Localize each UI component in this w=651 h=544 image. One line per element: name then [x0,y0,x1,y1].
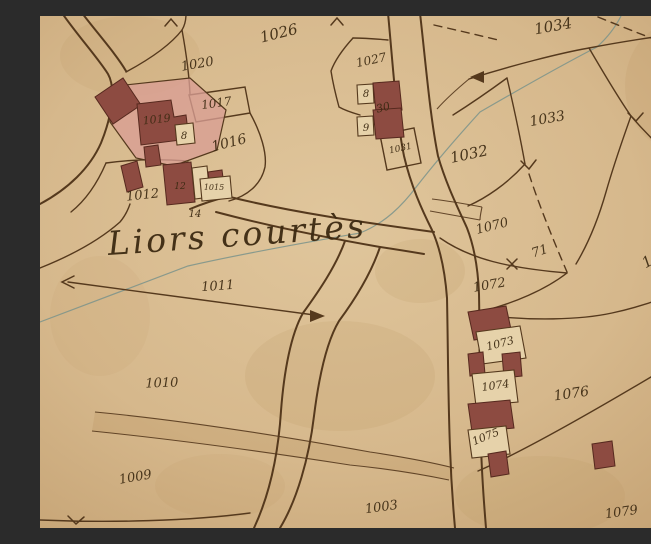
paper-stain [50,256,150,376]
cadastral-map: 1026102010171019810161012121015141027830… [40,16,651,528]
building-label-8: 8 [363,89,369,100]
building [592,441,615,469]
building [468,352,485,376]
paper-stain [155,454,285,518]
building-label-12: 12 [174,182,186,192]
building-label-9: 9 [363,123,370,134]
paper-stain [245,321,435,431]
map-canvas: 1026102010171019810161012121015141027830… [40,16,651,528]
parcel-label-1011: 1011 [201,278,235,295]
building-label-1015: 1015 [204,183,224,192]
building [144,145,161,167]
building-label-8: 8 [181,131,187,142]
parcel-label-1010: 1010 [145,375,179,391]
building [488,451,509,477]
